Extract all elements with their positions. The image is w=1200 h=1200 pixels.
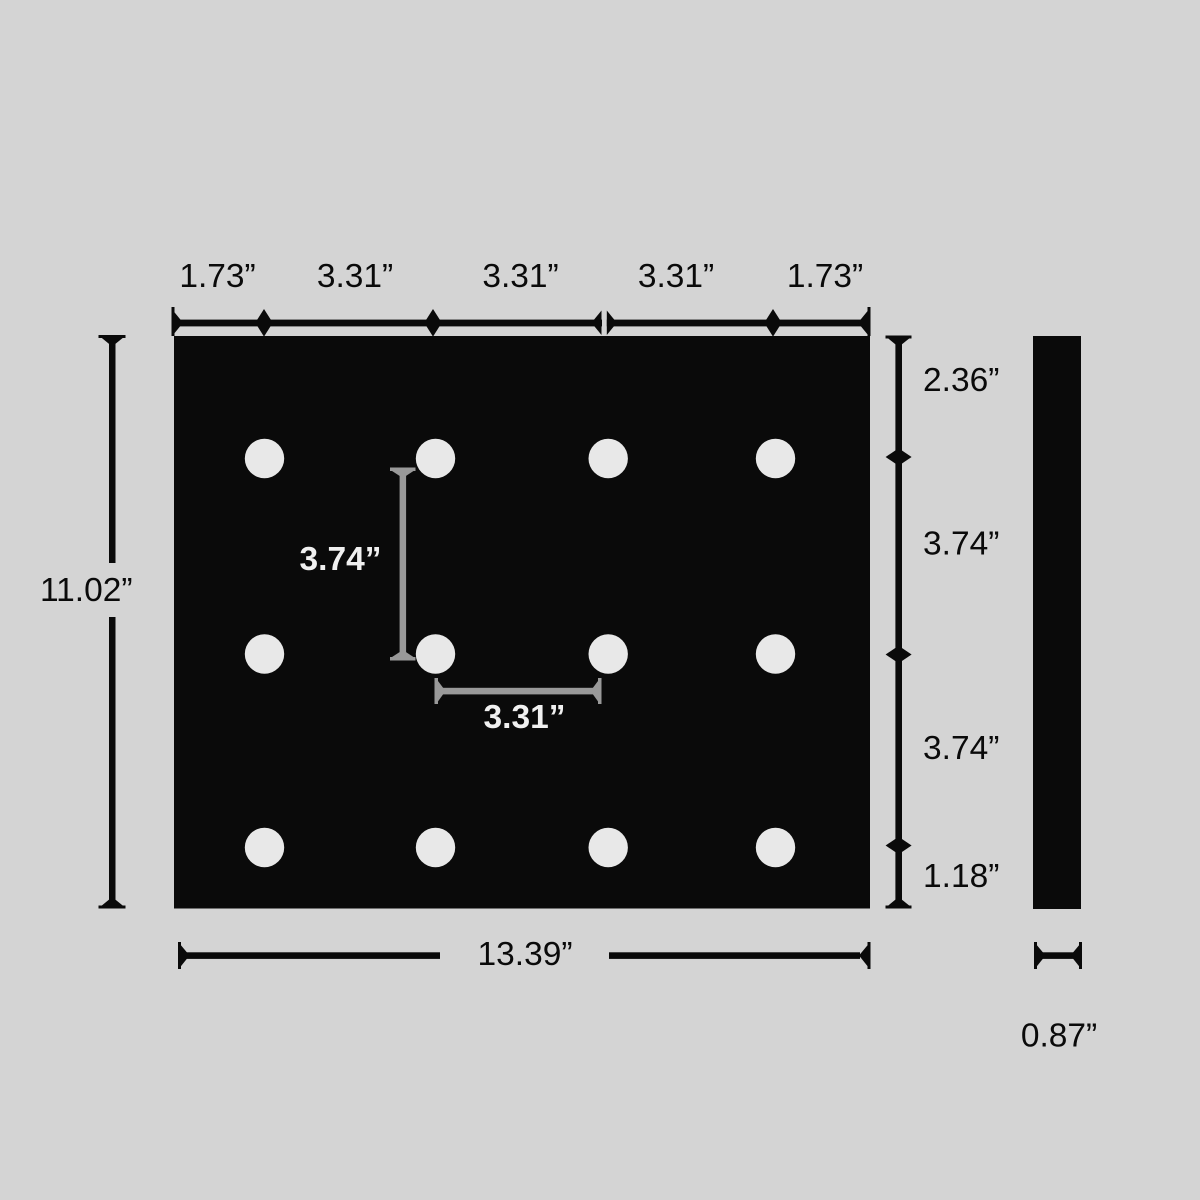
svg-text:3.31”: 3.31” (638, 258, 714, 295)
svg-text:3.74”: 3.74” (923, 526, 999, 563)
svg-text:0.87”: 0.87” (1021, 1018, 1097, 1055)
svg-text:3.31”: 3.31” (317, 258, 393, 295)
svg-text:3.74”: 3.74” (300, 541, 382, 578)
svg-text:3.74”: 3.74” (923, 730, 999, 767)
svg-text:2.36”: 2.36” (923, 362, 999, 399)
svg-text:13.39”: 13.39” (478, 936, 573, 973)
svg-text:1.73”: 1.73” (787, 258, 863, 295)
svg-text:3.31”: 3.31” (484, 699, 566, 736)
svg-text:11.02”: 11.02” (40, 572, 133, 609)
svg-text:1.18”: 1.18” (923, 858, 999, 895)
svg-text:1.73”: 1.73” (179, 258, 255, 295)
svg-text:3.31”: 3.31” (482, 258, 558, 295)
